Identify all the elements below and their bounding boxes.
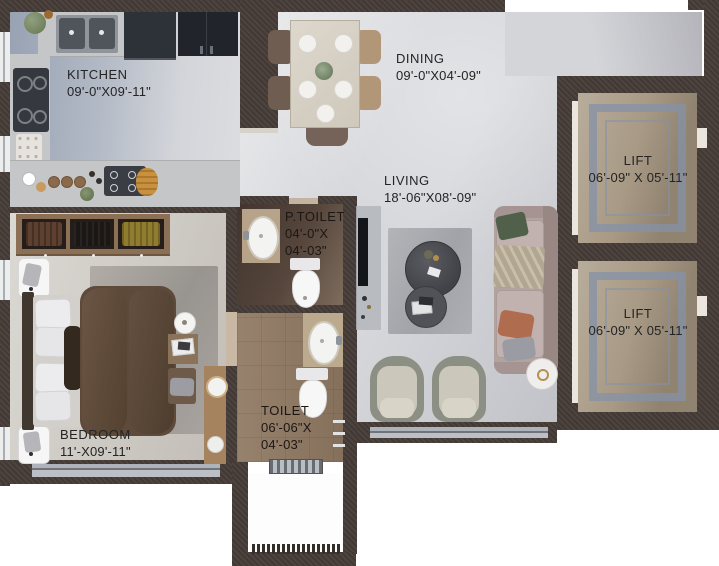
dining-name: DINING xyxy=(396,50,481,67)
lift-bottom-label: LIFT 06'-09" X 05'-11" xyxy=(562,305,714,339)
nightstand-bottom-dot xyxy=(29,452,33,456)
ptoilet-top-wall-a xyxy=(237,196,289,204)
lift-bottom-dims: 06'-09" X 05'-11" xyxy=(562,322,714,339)
ptoilet-wc-flush xyxy=(303,296,307,300)
ptoilet-dims1: 04'-0"X xyxy=(285,225,345,242)
toilet-living-wall xyxy=(343,196,357,462)
coffee-table-decor-leaf xyxy=(424,250,433,259)
toilet-dims1: 06'-06"X xyxy=(261,419,312,436)
dining-dims: 09'-0"X04'-09" xyxy=(396,67,481,84)
toilet-divider-wall xyxy=(237,305,343,313)
hob-burner-4 xyxy=(33,110,47,124)
living-name: LIVING xyxy=(384,172,476,189)
kitchen-plant-pot xyxy=(44,10,53,19)
bedroom-dims: 11'-X09'-11" xyxy=(60,443,131,460)
plate-top-right xyxy=(334,34,353,53)
lift-bottom-name: LIFT xyxy=(562,305,714,322)
plate-bottom-right xyxy=(334,80,353,99)
plate-bottom-center xyxy=(316,104,335,123)
plate-top-left xyxy=(298,34,317,53)
bread-loaf xyxy=(136,168,158,196)
mini-hob-dot-3 xyxy=(110,184,118,192)
kitchen-plant xyxy=(24,12,46,34)
pastry-1 xyxy=(48,176,60,188)
ptoilet-wc-bowl xyxy=(292,270,320,308)
kitchen-label: KITCHEN 09'-0"X09'-11" xyxy=(67,66,151,100)
hob-burner-1 xyxy=(17,76,33,92)
lift-lobby-corridor-floor xyxy=(505,12,702,76)
lift-top-name: LIFT xyxy=(562,152,714,169)
ptoilet-dims2: 04'-03" xyxy=(285,242,345,259)
fridge-handle xyxy=(200,46,203,54)
vestibule-left-wall xyxy=(232,462,248,566)
bedroom-window-1 xyxy=(0,260,10,300)
console-item-2 xyxy=(367,305,371,309)
toilet-dims2: 04'-03" xyxy=(261,436,312,453)
armchair-right-footpad xyxy=(442,398,476,418)
towel-rail-2 xyxy=(333,432,345,435)
bedroom-window-2 xyxy=(0,427,10,463)
floor-plan: KITCHEN 09'-0"X09'-11" DINING 09'-0"X04'… xyxy=(0,0,719,566)
kitchen-dining-column xyxy=(240,0,278,132)
towel-rail-1 xyxy=(333,420,345,423)
kitchen-cooktop-appliance xyxy=(124,12,176,60)
sofa-pillow-gray xyxy=(502,336,537,362)
bedroom-label: BEDROOM 11'-X09'-11" xyxy=(60,426,131,460)
ptoilet-door-threshold xyxy=(289,198,318,204)
ptoilet-faucet xyxy=(243,231,249,240)
nightstand-bottom-lamp xyxy=(23,431,42,453)
kitchen-name: KITCHEN xyxy=(67,66,151,83)
living-label: LIVING 18'-06"X08'-09" xyxy=(384,172,476,206)
lift-top-label: LIFT 06'-09" X 05'-11" xyxy=(562,152,714,186)
toilet-label: TOILET 06'-06"X 04'-03" xyxy=(261,402,312,453)
lift-top-right-frame xyxy=(697,128,707,148)
bed-duvet-fold-left xyxy=(82,288,127,434)
bed-pillow-1 xyxy=(34,298,71,329)
column-end-cap xyxy=(240,128,278,133)
sink-faucet xyxy=(69,30,74,35)
counter-plant xyxy=(80,187,94,201)
ptoilet-name: P.TOILET xyxy=(285,208,345,225)
kitchen-sink xyxy=(56,15,118,53)
dining-label: DINING 09'-0"X04'-09" xyxy=(396,50,481,84)
toilet-basin-drain xyxy=(320,339,324,343)
pepper-mill-1 xyxy=(89,171,95,177)
sofa-throw-blanket xyxy=(493,245,545,290)
mini-hob-dot-1 xyxy=(110,171,118,179)
kitchen-window-1 xyxy=(0,32,10,82)
pastry-3 xyxy=(74,176,86,188)
kitchen-hob xyxy=(13,68,49,132)
coffee-table-decor-gold xyxy=(433,255,439,261)
ptoilet-label: P.TOILET 04'-0"X 04'-03" xyxy=(285,208,345,259)
fridge-handle-2 xyxy=(210,46,213,54)
side-table-gold-ring xyxy=(537,369,549,381)
ptoilet-top-wall-b xyxy=(318,196,344,204)
dressing-mirror xyxy=(206,376,228,398)
hob-burner-2 xyxy=(33,76,47,90)
stair-hatching xyxy=(252,544,340,554)
wardrobe-handle-3 xyxy=(140,254,143,257)
coffee-pot xyxy=(36,182,46,192)
hob-burner-3 xyxy=(17,108,33,124)
bedroom-name: BEDROOM xyxy=(60,426,131,443)
console-item-1 xyxy=(362,296,367,301)
vestibule-bottom-wall xyxy=(232,552,356,566)
kitchen-window-2 xyxy=(0,136,10,172)
small-table-book-dark xyxy=(419,297,434,306)
console-item-3 xyxy=(361,315,365,319)
towel-rail-3 xyxy=(333,444,345,447)
entrance-door-grill xyxy=(269,459,323,474)
vestibule-right-wall xyxy=(343,462,357,554)
bedroom-door-threshold xyxy=(226,312,237,366)
entrance-vestibule-floor xyxy=(248,473,343,552)
bedside-lamp-right-dot xyxy=(182,320,187,325)
wardrobe-clothes-dark xyxy=(74,222,110,246)
fridge-divider xyxy=(206,12,207,56)
bed-pillow-4 xyxy=(34,390,71,421)
wardrobe-clothes-brown xyxy=(26,222,62,246)
pastry-2 xyxy=(61,176,73,188)
wardrobe-handle-1 xyxy=(44,254,47,257)
pepper-mill-2 xyxy=(96,178,102,184)
bedroom-bottom-window xyxy=(32,464,220,477)
tv-screen xyxy=(358,218,368,286)
mini-hob-dot-2 xyxy=(128,171,136,179)
sink-faucet-2 xyxy=(99,30,104,35)
plate-bottom-left xyxy=(298,80,317,99)
toilet-faucet xyxy=(336,336,342,345)
dressing-deco xyxy=(207,436,224,453)
nightstand-top-dot xyxy=(29,287,33,291)
table-centerpiece-plant xyxy=(315,62,333,80)
armchair-left-footpad xyxy=(380,398,414,418)
living-bottom-window xyxy=(370,427,548,438)
living-dims: 18'-06"X08'-09" xyxy=(384,189,476,206)
coffee-cup xyxy=(22,172,36,186)
mini-hob-dot-4 xyxy=(128,184,136,192)
ptoilet-basin-drain xyxy=(259,234,263,238)
toilet-wc-tank xyxy=(296,368,328,380)
kitchen-fridge xyxy=(178,12,238,56)
right-edge-wall xyxy=(704,0,719,86)
toilet-name: TOILET xyxy=(261,402,312,419)
lift-top-dims: 06'-09" X 05'-11" xyxy=(562,169,714,186)
bench-towel xyxy=(170,378,195,397)
wardrobe-handle-2 xyxy=(92,254,95,257)
wardrobe-clothes-olive xyxy=(122,222,160,246)
bedside-table-book xyxy=(178,341,191,350)
ptoilet-wc-tank xyxy=(290,258,320,270)
kitchen-dims: 09'-0"X09'-11" xyxy=(67,83,151,100)
ptoilet-washbasin xyxy=(247,216,279,260)
sofa-backrest xyxy=(543,206,558,374)
